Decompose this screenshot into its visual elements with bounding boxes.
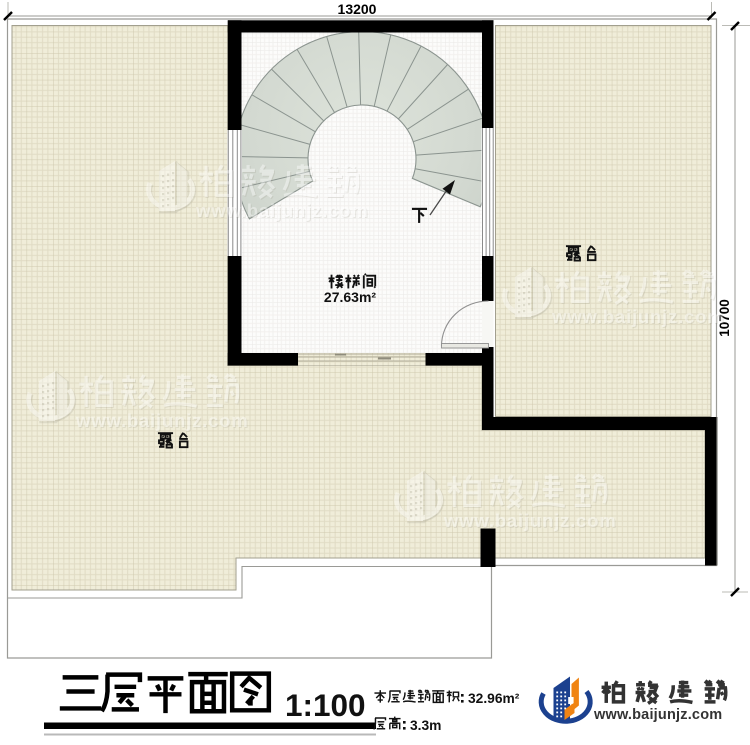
svg-text:32.96m²: 32.96m² [468,691,520,706]
svg-text:www.baijunjz.com: www.baijunjz.com [593,707,722,723]
svg-text:13200: 13200 [338,1,377,17]
svg-text:3.3m: 3.3m [410,718,441,733]
svg-text:27.63m²: 27.63m² [324,289,376,305]
svg-text:1:100: 1:100 [285,687,366,723]
